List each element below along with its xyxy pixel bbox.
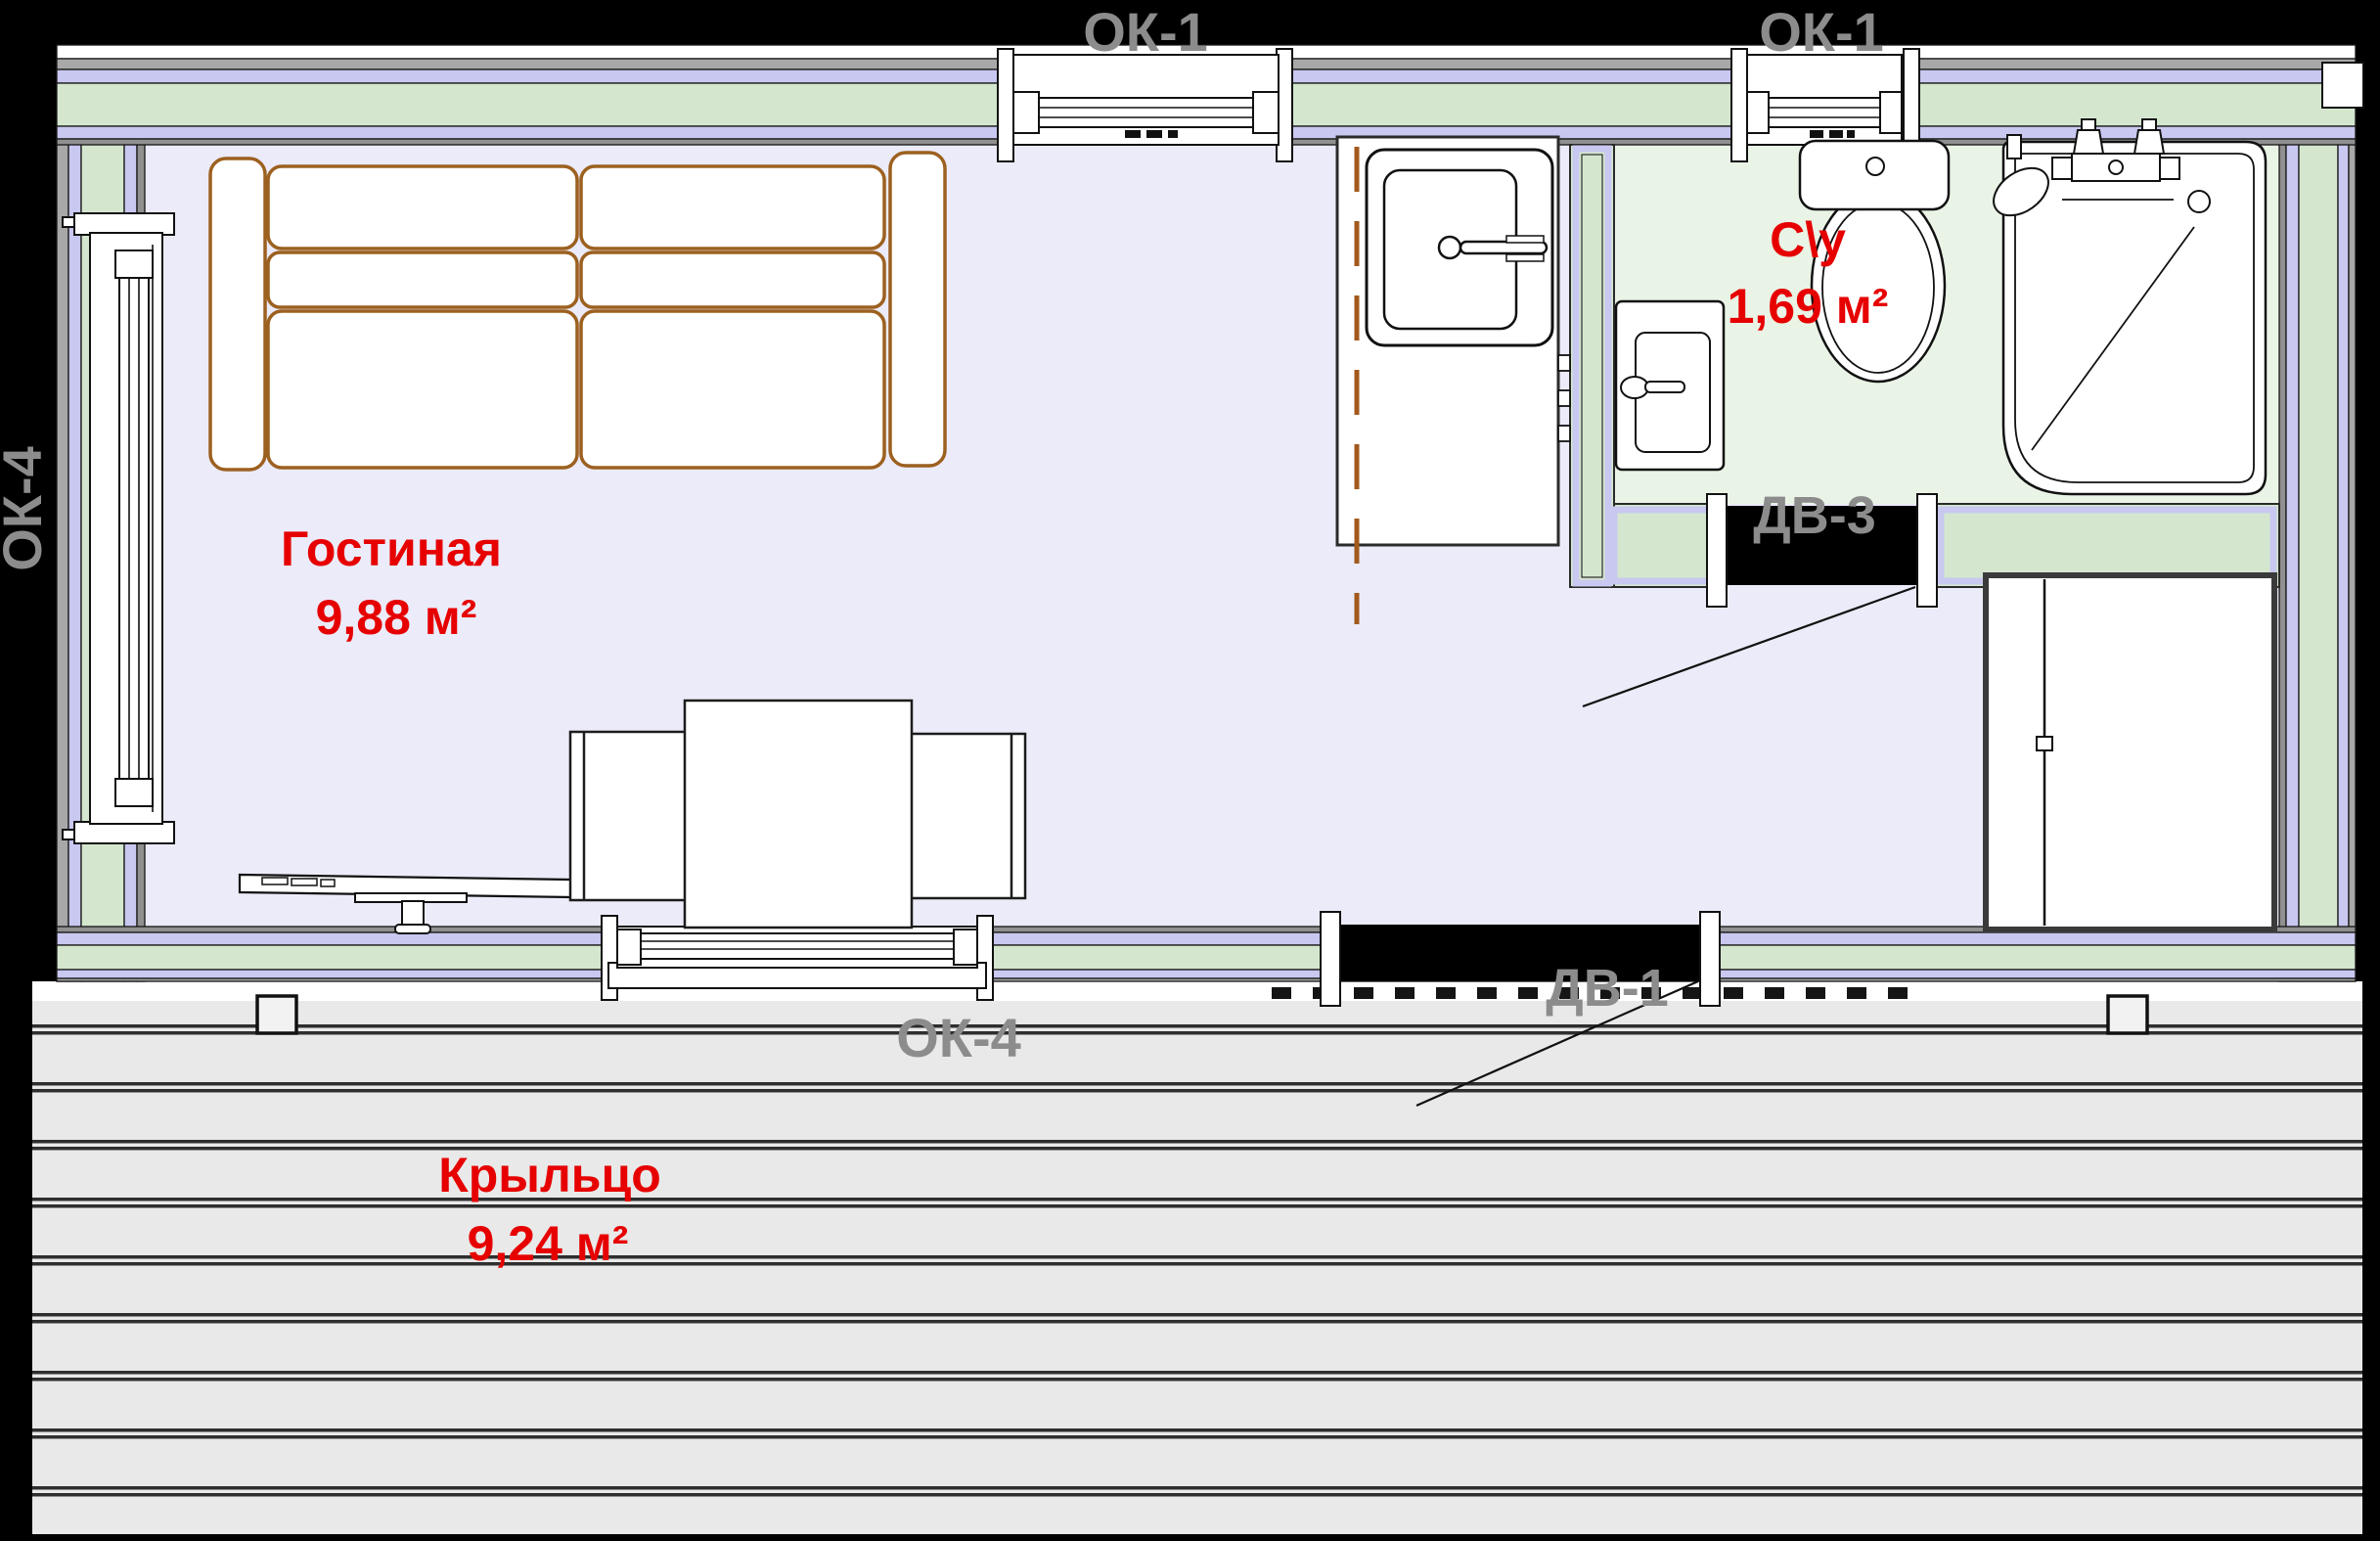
room-name-bathroom: С\у (1770, 212, 1846, 267)
room-area-bathroom: 1,69 м² (1728, 279, 1889, 334)
window-tag-ok4-side: ОК-4 (0, 446, 53, 571)
chair-right (910, 734, 1025, 898)
window-ok1-left (998, 49, 1292, 161)
wall-vent (2322, 63, 2363, 108)
wall-right (2279, 57, 2356, 981)
door-tag-dv1: ДВ-1 (1546, 959, 1668, 1018)
porch-post (2108, 996, 2147, 1033)
partition-vertical (1570, 145, 1614, 587)
porch-post (257, 996, 296, 1033)
sill-ticks (1125, 130, 1178, 138)
sill-ticks (1810, 130, 1855, 138)
room-name-living: Гостиная (281, 521, 502, 576)
shower (1985, 119, 2266, 494)
window-tag-ok1-left: ОК-1 (1083, 1, 1208, 63)
table (685, 701, 912, 928)
drain (2188, 191, 2210, 212)
washbasin (1616, 301, 1724, 470)
kitchen-sink (1367, 150, 1552, 345)
window-tag-ok4-bottom: ОК-4 (896, 1007, 1021, 1068)
room-name-porch: Крыльцо (438, 1148, 661, 1202)
porch-deck (32, 981, 2362, 1534)
door-tag-dv3: ДВ-3 (1753, 486, 1875, 545)
dining-set (570, 701, 1025, 928)
room-area-living: 9,88 м² (316, 590, 477, 645)
room-area-porch: 9,24 м² (468, 1216, 629, 1271)
window-tag-ok1-right: ОК-1 (1759, 1, 1884, 63)
floor-plan-drawing: ОК-1 ОК-1 ОК-4 ОК-4 ДВ-1 ДВ-3 Гостиная 9… (0, 0, 2380, 1541)
wall-bottom (57, 927, 2356, 981)
floor-plan-page: ОК-1 ОК-1 ОК-4 ОК-4 ДВ-1 ДВ-3 Гостиная 9… (0, 0, 2380, 1541)
chair-left (570, 732, 686, 900)
wardrobe (1986, 575, 2274, 929)
flush-button (1866, 158, 1884, 175)
faucet (1621, 377, 1648, 398)
faucet (1439, 237, 1460, 258)
